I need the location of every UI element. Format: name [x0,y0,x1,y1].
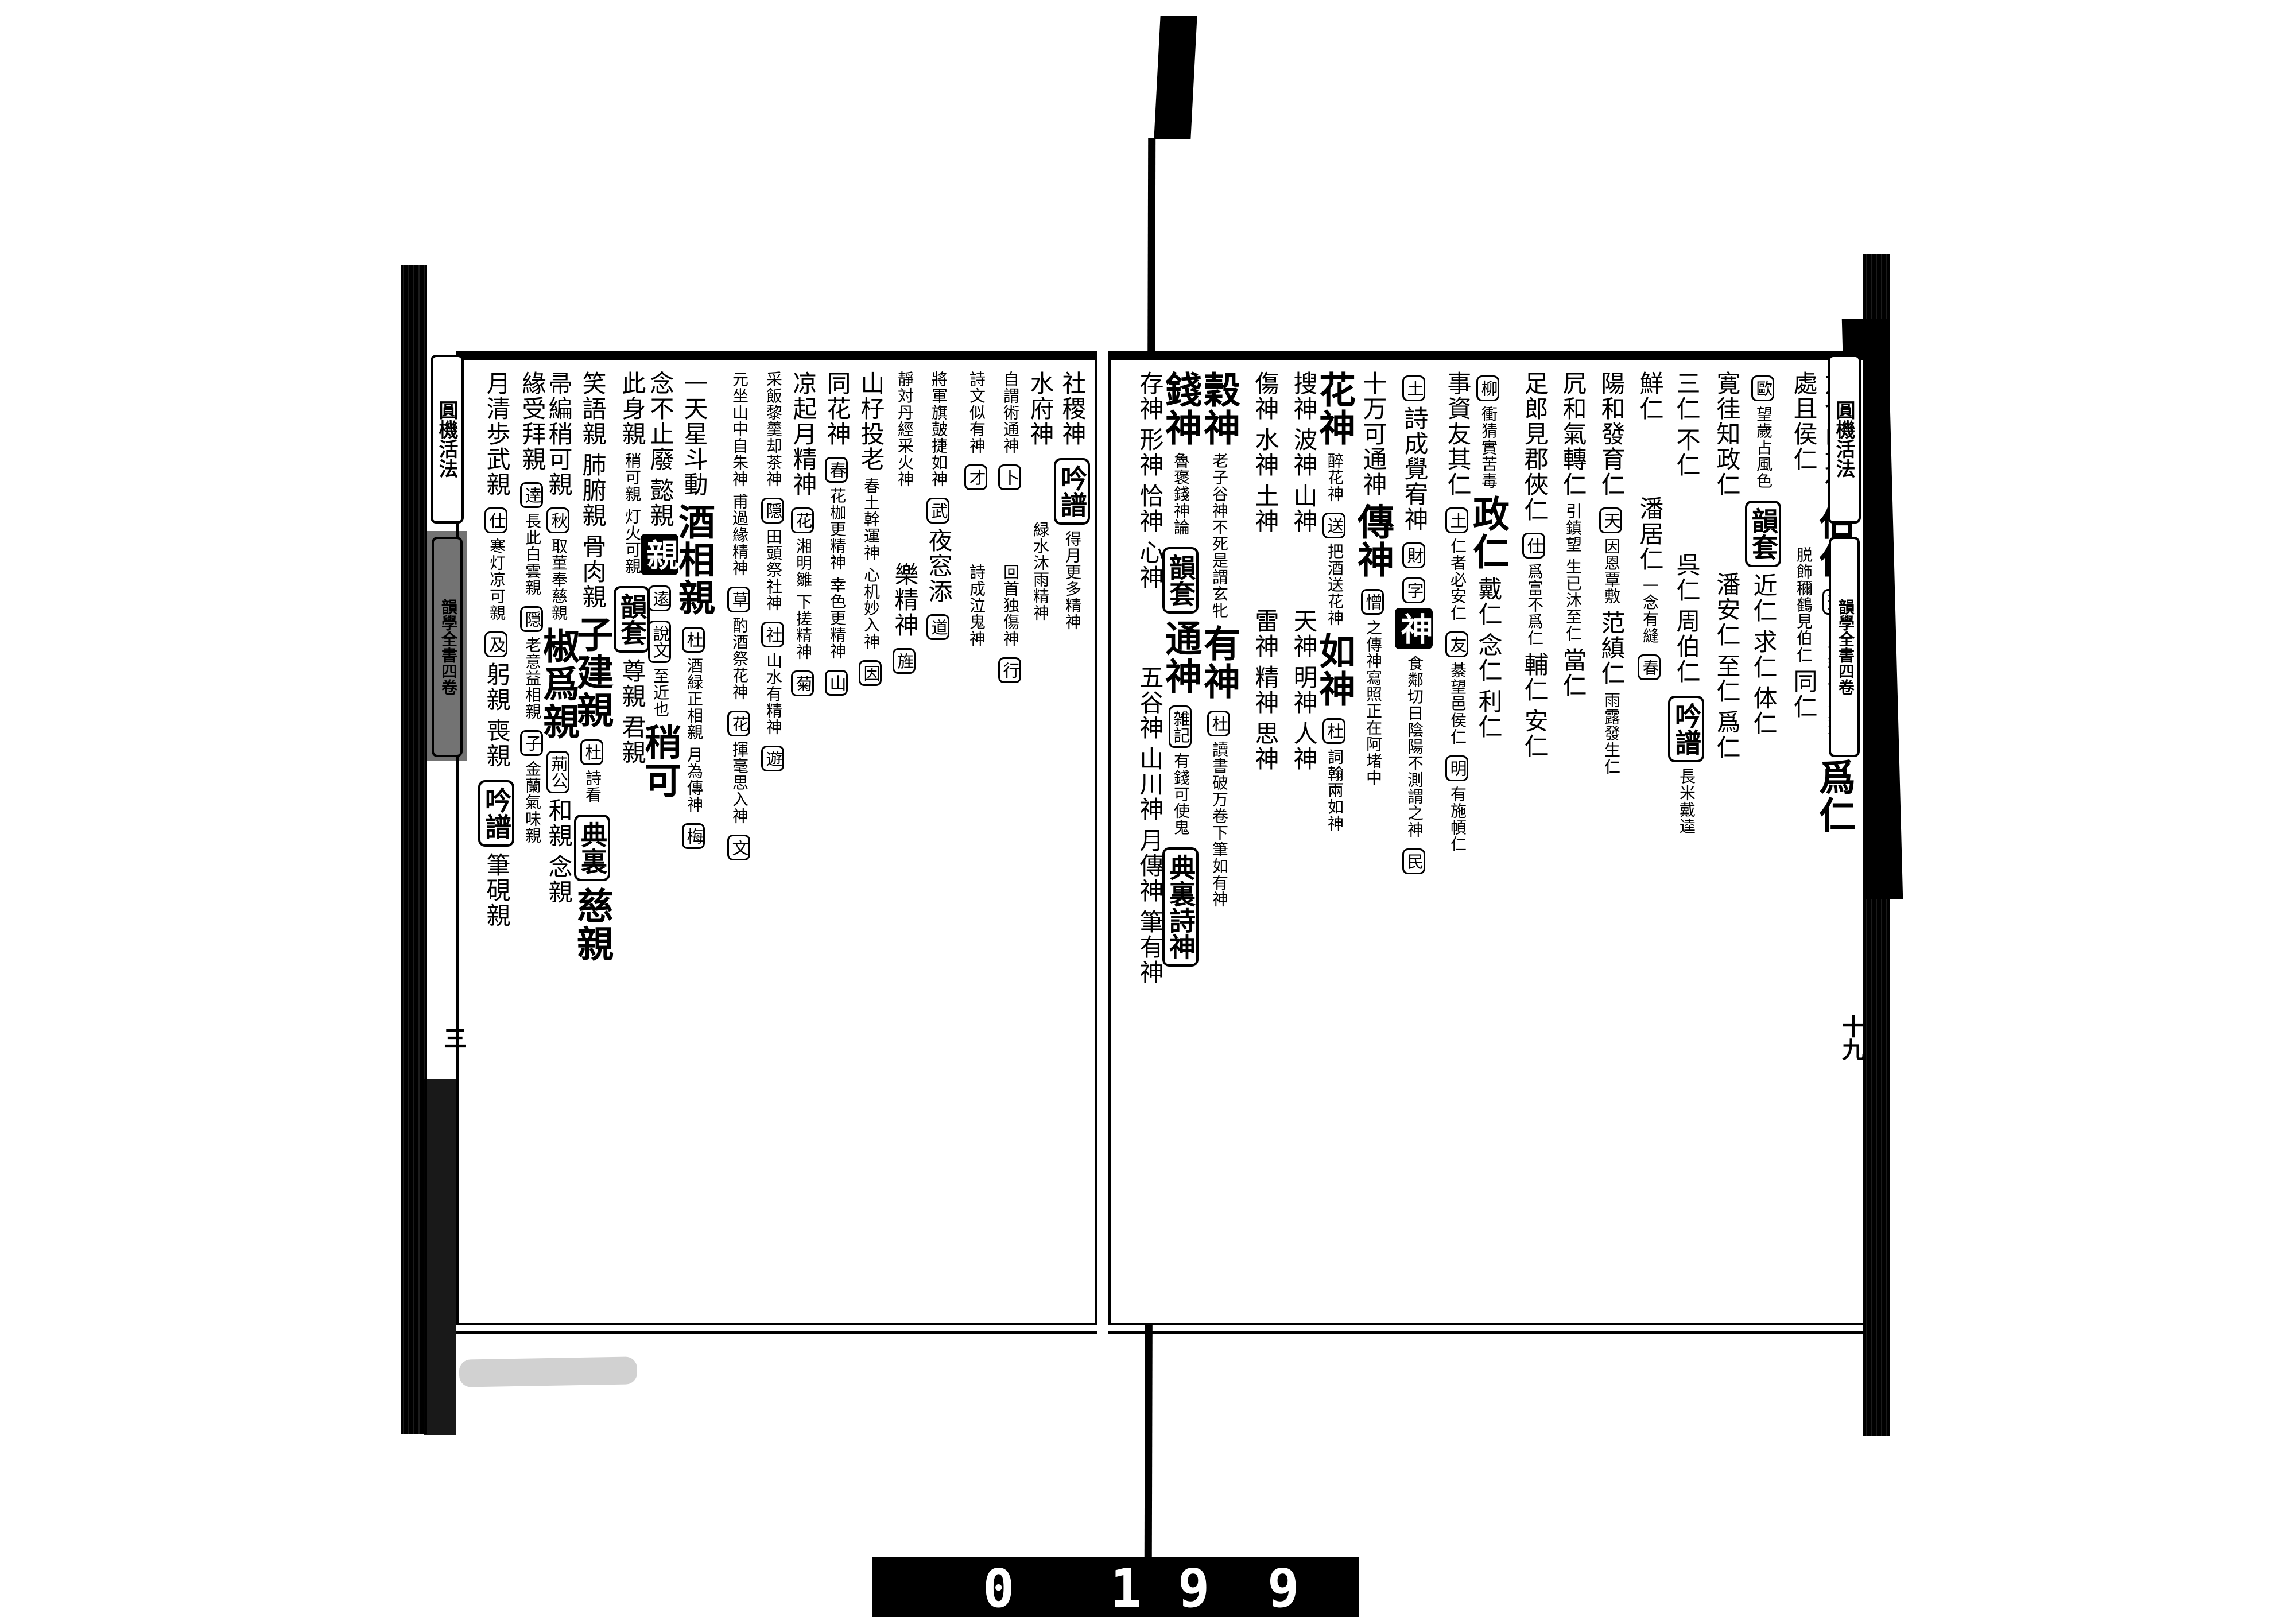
gloss: 采飯黎羹却茶神 [764,371,782,487]
text-column: 陽和發育仁天因恩覃敷范縝仁雨露發生仁 [1589,371,1624,1312]
tag-box: 字 [1402,577,1425,603]
phrase: 凥和氣轉仁 [1559,371,1585,497]
gloss: 之傳神寫照正在阿堵中 [1364,619,1382,786]
gloss: 脱飾穪鶴見伯仁 [1794,546,1812,663]
gloss: 花枷更精神 [828,487,846,571]
gloss: 酌酒祭花神 [730,617,748,700]
phrase: 潘居仁 [1636,496,1662,572]
phrase: 笑語親 [579,371,605,447]
counter-digit: 9 [1267,1558,1299,1617]
gloss: 得月更多精神 [1063,530,1081,630]
text-column: 一天星斗動酒相親杜酒緑正相親月為傳神梅 [683,371,714,1312]
gloss: 緑水沐雨精神 [1031,521,1049,621]
gloss: 引鎮望 [1564,503,1581,553]
headword: 爲仁 [1814,758,1855,834]
text-column: 事資友其仁土仁者必安仁友綦望邑侯仁明有施幁仁 [1436,371,1470,1312]
text-column: 元坐山中自朱神甫過緣精神草酌酒祭花神花揮毫思入神文 [717,371,748,1312]
phrase: 筆有神 [1136,909,1162,985]
gloss: 甫過緣精神 [730,493,748,576]
text-column: 柳衝猜實苦毒政仁戴仁念仁利仁 [1474,371,1508,1312]
tag-box: 草 [727,587,750,612]
gloss: 心机妙入神 [862,567,879,650]
phrase: 樂精神 [891,562,917,638]
gloss: 至近也 [651,668,669,718]
tag-box: 子 [520,730,543,756]
phrase: 三仁 [1673,371,1699,421]
gloss: 長米戴逵 [1677,768,1695,835]
text-column: 笑語親肺腑親骨肉親子建親杜詩看典裏慈親 [581,371,612,1312]
phrase: 念仁 [1475,633,1501,683]
text-column: 凉起月精神花湘明雛下搓精神菊 [785,371,816,1312]
label-box: 吟譜 [1668,696,1704,762]
gloss: 因恩覃敷 [1602,538,1620,604]
tag-box: 友 [1445,631,1468,657]
phrase: 波神 [1290,427,1316,478]
tag-box: 說文 [648,621,671,663]
text-column: 穀神老子谷神不死是謂玄牝有神杜讀書破万卷下筆如有神 [1205,371,1239,1312]
label-box: 典裏詩神 [1162,847,1199,967]
gloss: 有錢可使鬼 [1172,753,1189,836]
phrase: 求仁 [1750,629,1776,680]
phrase: 近仁 [1750,573,1776,623]
scan-streak [459,1356,638,1387]
phrase: 潘安仁 [1713,572,1739,647]
phrase: 心神 [1136,540,1162,590]
tag-box: 天 [1599,507,1622,533]
gloss: 食鄰切日陰陽不測謂之神 [1405,655,1423,838]
gap [1009,495,1010,558]
phrase: 范縝仁 [1597,610,1624,686]
phrase: 山神 [1290,483,1316,534]
text-column: 采飯黎羹却茶神隠田頭祭社神社山水有精神遊 [751,371,782,1312]
headword: 傳神 [1352,503,1393,579]
gap [1802,478,1804,541]
phrase: 明神 [1290,665,1316,715]
headword: 花神 [1314,371,1355,447]
phrase: 月傳神 [1136,828,1162,903]
gloss: 稍可親 [623,452,641,502]
tag-box: 卜 [998,464,1021,490]
text-column: 緣受拜親逹長此白雲親隠老意益相親子金蘭氣味親 [514,371,545,1312]
tag-box: 道 [926,614,949,640]
gloss: 揮毫思入神 [730,741,748,824]
phrase: 至仁 [1713,653,1739,704]
gloss: 酒緑正相親 [685,657,703,740]
gap [1649,427,1650,490]
phrase: 喪親 [483,718,509,769]
phrase: 一天星斗動 [680,371,707,497]
tag-box: 土 [1402,375,1425,401]
phrase: 處且侯仁 [1790,371,1816,472]
phrase: 夜窓添 [925,528,951,604]
tag-box: 歐 [1751,375,1774,401]
gloss: 生已沐至仁 [1564,559,1581,642]
ink-smear [427,531,467,761]
tag-box: 文 [727,835,750,860]
gap [1685,483,1686,546]
text-column: 靜対丹經采火神樂精神旌 [886,371,917,1312]
label-box: 韻套 [1162,547,1199,614]
phrase: 同仁 [1790,669,1816,719]
tag-box: 仕 [484,507,507,533]
headword: 有神 [1199,625,1239,700]
gloss: 綦望邑侯仁 [1448,662,1466,745]
gloss: 衝猜實苦毒 [1479,406,1497,489]
phrase: 山杍投老 [857,371,883,472]
text-column: 同花神春花枷更精神幸色更精神山 [819,371,850,1312]
gloss: 湘明雛 [794,538,812,588]
tag-box: 旌 [893,648,916,674]
text-column: 搜神波神山神天神明神人神 [1282,371,1316,1312]
tag-box: 武 [926,498,949,524]
book-title-label: 圓機活法 [430,355,464,524]
gloss: 田頭祭社神 [764,528,782,611]
gap [903,493,905,556]
phrase: 凉起月精神 [789,371,816,497]
text-column: 傷神水神土神雷神精神思神 [1243,371,1278,1312]
tag-box: 仕 [1522,533,1545,559]
phrase: 足郎見郡俠仁 [1521,371,1547,522]
gloss: 醉花神 [1325,452,1343,502]
phrase: 戴仁 [1475,576,1501,627]
text-column: 鮮仁潘居仁一念有縫春 [1628,371,1662,1312]
text-column: 足郎見郡俠仁仕爲富不爲仁輔仁安仁 [1512,371,1547,1312]
text-column: 此身親稍可親灯火可親韻套尊親君親 [615,371,646,1312]
gloss: 月為傳神 [685,746,703,813]
tag-box: 春 [825,457,848,483]
gloss: 詩看 [583,770,601,803]
text-column: 詩文似有神才詩成泣鬼神 [954,371,985,1312]
tag-box: 社 [761,622,784,647]
phrase: 同花神 [823,371,850,447]
gloss: 詩文似有神 [967,371,985,454]
ink-smear [424,1079,456,1435]
phrase: 尊親 [618,658,645,709]
gloss: 自謂術通神 [1001,371,1019,454]
label-box: 韻套 [1745,501,1781,567]
tag-box: 遊 [761,746,784,771]
tag-box: 山 [825,670,848,696]
gloss: 老意益相親 [523,637,541,720]
tag-box: 春 [1638,654,1661,680]
gloss: 春土幹運神 [862,478,879,561]
tag-box: 財 [1402,542,1425,568]
gloss: 有施幁仁 [1448,786,1466,852]
phrase: 安仁 [1521,708,1547,759]
counter-digit: 0 [983,1558,1014,1617]
phrase: 月清歩武親 [483,371,509,497]
headword: 政仁 [1468,495,1508,571]
gloss: 望歲占風色 [1754,406,1772,489]
phrase: 詩成覺宥神 [1401,406,1427,532]
microfilm-scan: 社稷神吟譜得月更多精神水府神緑水沐雨精神自謂術通神卜回首独傷神行詩文似有神才詩成… [0,0,2296,1617]
label-box: 吟譜 [1054,458,1090,525]
phrase: 天神 [1290,608,1316,659]
gloss: 雨露發生仁 [1602,692,1620,775]
tag-box: 杜 [682,627,705,653]
phrase: 形神 [1136,427,1162,478]
tag-box: 秋 [546,507,569,533]
tag-box: 花 [727,711,750,736]
text-column: 月清歩武親仕寒灯凉可親及躬親喪親吟譜筆硯親 [480,371,511,1312]
tag-box: 隠 [520,606,543,632]
gloss: 老子谷神不死是謂玄牝 [1210,452,1228,619]
phrase: 寛徍知政仁 [1713,371,1739,497]
phrase: 人神 [1290,721,1316,771]
phrase: 呉仁 [1673,552,1699,603]
tag-box: 杜 [580,739,603,765]
phrase: 緣受拜親 [518,371,545,472]
gloss: 詩成泣鬼神 [967,564,985,647]
text-column: 存神形神恰神心神五谷神山川神月傳神筆有神 [1128,371,1162,1312]
gloss: 幸色更精神 [828,576,846,660]
gloss: 魯褒錢神論 [1172,452,1189,536]
phrase: 傷神 [1251,371,1278,421]
phrase: 利仁 [1475,689,1501,739]
gloss: 將軍旗皷捷如神 [929,371,947,487]
gloss: 讀書破万卷下筆如有神 [1210,741,1228,908]
tag-box: 荊公 [546,751,569,793]
headword: 如神 [1314,632,1355,708]
text-column: 山杍投老春土幹運神心机妙入神因 [852,371,883,1312]
phrase: 精神 [1251,665,1278,715]
text-column: 處且侯仁脱飾穪鶴見伯仁同仁 [1782,371,1816,1312]
phrase: 雷神 [1251,608,1278,659]
phrase: 肺腑親 [579,452,605,528]
phrase: 十万可通神 [1359,371,1386,497]
left-page-text: 社稷神吟譜得月更多精神水府神緑水沐雨精神自謂術通神卜回首独傷神行詩文似有神才詩成… [467,371,1087,1312]
book-title-label: 圓機活法 [1828,355,1861,524]
gap [1149,596,1150,659]
gloss: 長此白雲親 [523,513,541,596]
phrase: 搜神 [1290,371,1316,421]
left-page-frame: 社稷神吟譜得月更多精神水府神緑水沐雨精神自謂術通神卜回首独傷神行詩文似有神才詩成… [456,351,1097,1325]
headword: 穀神 [1199,371,1239,447]
label-box: 典裏 [574,815,610,881]
headword: 酒相親 [673,503,714,616]
text-column: 自謂術通神卜回首独傷神行 [988,371,1019,1312]
tag-box: 土 [1445,507,1468,533]
tag-box: 花 [791,507,814,533]
text-column: 歐望歲占風色韻套近仁求仁体仁 [1743,371,1778,1312]
tag-box: 柳 [1476,375,1499,401]
phrase: 社稷神 [1058,371,1085,447]
film-frame-counter: 0 1 9 9 [872,1557,1359,1617]
phrase: 山川神 [1136,746,1162,822]
phrase: 存神 [1136,371,1162,421]
gap [1725,503,1727,566]
phrase: 土神 [1251,483,1278,534]
text-column: 社稷神吟譜得月更多精神 [1056,371,1087,1312]
tag-box: 民 [1402,848,1425,874]
gap [1302,540,1304,603]
label-box: 韻套 [614,586,650,653]
text-column: 花神醉花神送把酒送花神如神杜詞翰兩如神 [1320,371,1355,1312]
phrase: 骨肉親 [579,534,605,610]
phrase: 水府神 [1026,371,1053,447]
headword: 錢神 [1160,371,1201,447]
right-page-text: 方今尚武何伯仁蘇當年織履隨方進ヲ爲仁處且侯仁脱飾穪鶴見伯仁同仁歐望歲占風色韻套近… [1119,371,1855,1312]
film-top-marker [1154,16,1197,139]
phrase: 輔仁 [1521,652,1547,703]
gloss: 把酒送花神 [1325,543,1343,626]
phrase: 事資友其仁 [1444,371,1470,497]
folio-number: 三 [436,1026,470,1049]
gap [975,495,976,558]
text-column: 水府神緑水沐雨精神 [1022,371,1053,1312]
gloss: 山水有精神 [764,652,782,735]
tag-box: 及 [484,631,507,657]
phrase: 恰神 [1136,483,1162,534]
text-column: 十万可通神傳神憎之傳神寫照正在阿堵中 [1359,371,1393,1312]
phrase: 体仁 [1750,685,1776,736]
tag-box: 杜 [1322,718,1345,744]
gloss: 爲富不爲仁 [1525,563,1543,646]
phrase: 此身親 [618,371,645,447]
phrase: 水神 [1251,427,1278,478]
tag-box: 菊 [791,670,814,696]
tag-box: 行 [998,657,1021,683]
phrase: 五谷神 [1136,665,1162,740]
phrase: 念親 [545,854,571,905]
tag-box: 因 [859,660,882,686]
phrase: 懿親 [646,478,673,528]
gloss: 元坐山中自朱神 [730,371,748,487]
volume-label: 韻學全書四卷 [1829,537,1860,757]
phrase: 思神 [1251,721,1278,771]
tag-box: 杜 [1207,711,1230,736]
phrase: 和親 [545,798,571,848]
phrase: 君親 [618,715,645,765]
gloss: 回首独傷神 [1001,564,1019,647]
category-headword: 神 [1395,608,1433,649]
right-page-frame: 方今尚武何伯仁蘇當年織履隨方進ヲ爲仁處且侯仁脱飾穪鶴見伯仁同仁歐望歲占風色韻套近… [1108,351,1865,1325]
folio-number: 十九 [1835,1015,1868,1061]
phrase: 不仁 [1673,427,1699,478]
tag-box: 明 [1445,755,1468,781]
gloss: 下搓精神 [794,594,812,660]
text-column: 將軍旗皷捷如神武夜窓添道 [920,371,951,1312]
phrase: 躬親 [483,662,509,712]
counter-digit: 9 [1178,1558,1209,1617]
phrase: 周伯仁 [1673,608,1699,684]
gloss: 一念有縫 [1640,577,1658,644]
tag-box: 逹 [520,482,543,508]
text-column: 寛徍知政仁潘安仁至仁爲仁 [1705,371,1739,1312]
gloss: 寒灯凉可親 [487,538,505,621]
gloss: 仁者必安仁 [1448,538,1466,621]
phrase: 念不止廢 [646,371,673,472]
label-box: 吟譜 [478,780,514,847]
phrase: 當仁 [1559,647,1585,698]
tag-box: 才 [964,464,987,490]
text-column: 凥和氣轉仁引鎮望生已沐至仁當仁 [1551,371,1585,1312]
phrase: 陽和發育仁 [1597,371,1624,497]
phrase: 鮮仁 [1636,371,1662,421]
phrase: 爲仁 [1713,709,1739,760]
tag-box: 憎 [1361,589,1384,615]
tag-box: 送 [1322,513,1345,538]
gap [1264,540,1265,603]
tag-box: 隠 [761,498,784,524]
text-column: 三仁不仁呉仁周伯仁吟譜長米戴逵 [1666,371,1701,1312]
tag-box: 雑記 [1169,705,1192,748]
headword: 慈親 [572,887,612,963]
gloss: 取菫奉慈親 [549,538,567,621]
gloss: 金蘭氣味親 [523,761,541,844]
gloss: 靜対丹經采火神 [895,371,913,487]
tag-box: 梅 [682,823,705,849]
counter-digit: 1 [1110,1558,1142,1617]
headword: 通神 [1160,619,1201,695]
gloss: 詞翰兩如神 [1325,749,1343,832]
phrase: 筆硯親 [483,852,509,928]
phrase: 帚編稍可親 [545,371,571,497]
gap [1039,452,1040,515]
text-column: 土詩成覺宥神財字神食鄰切日陰陽不測謂之神民 [1397,371,1432,1312]
gloss: 灯火可親 [623,508,641,575]
tag-box: 逺 [648,585,671,611]
text-column: 錢神魯褒錢神論韻套通神雑記有錢可使鬼典裏詩神 [1166,371,1201,1312]
